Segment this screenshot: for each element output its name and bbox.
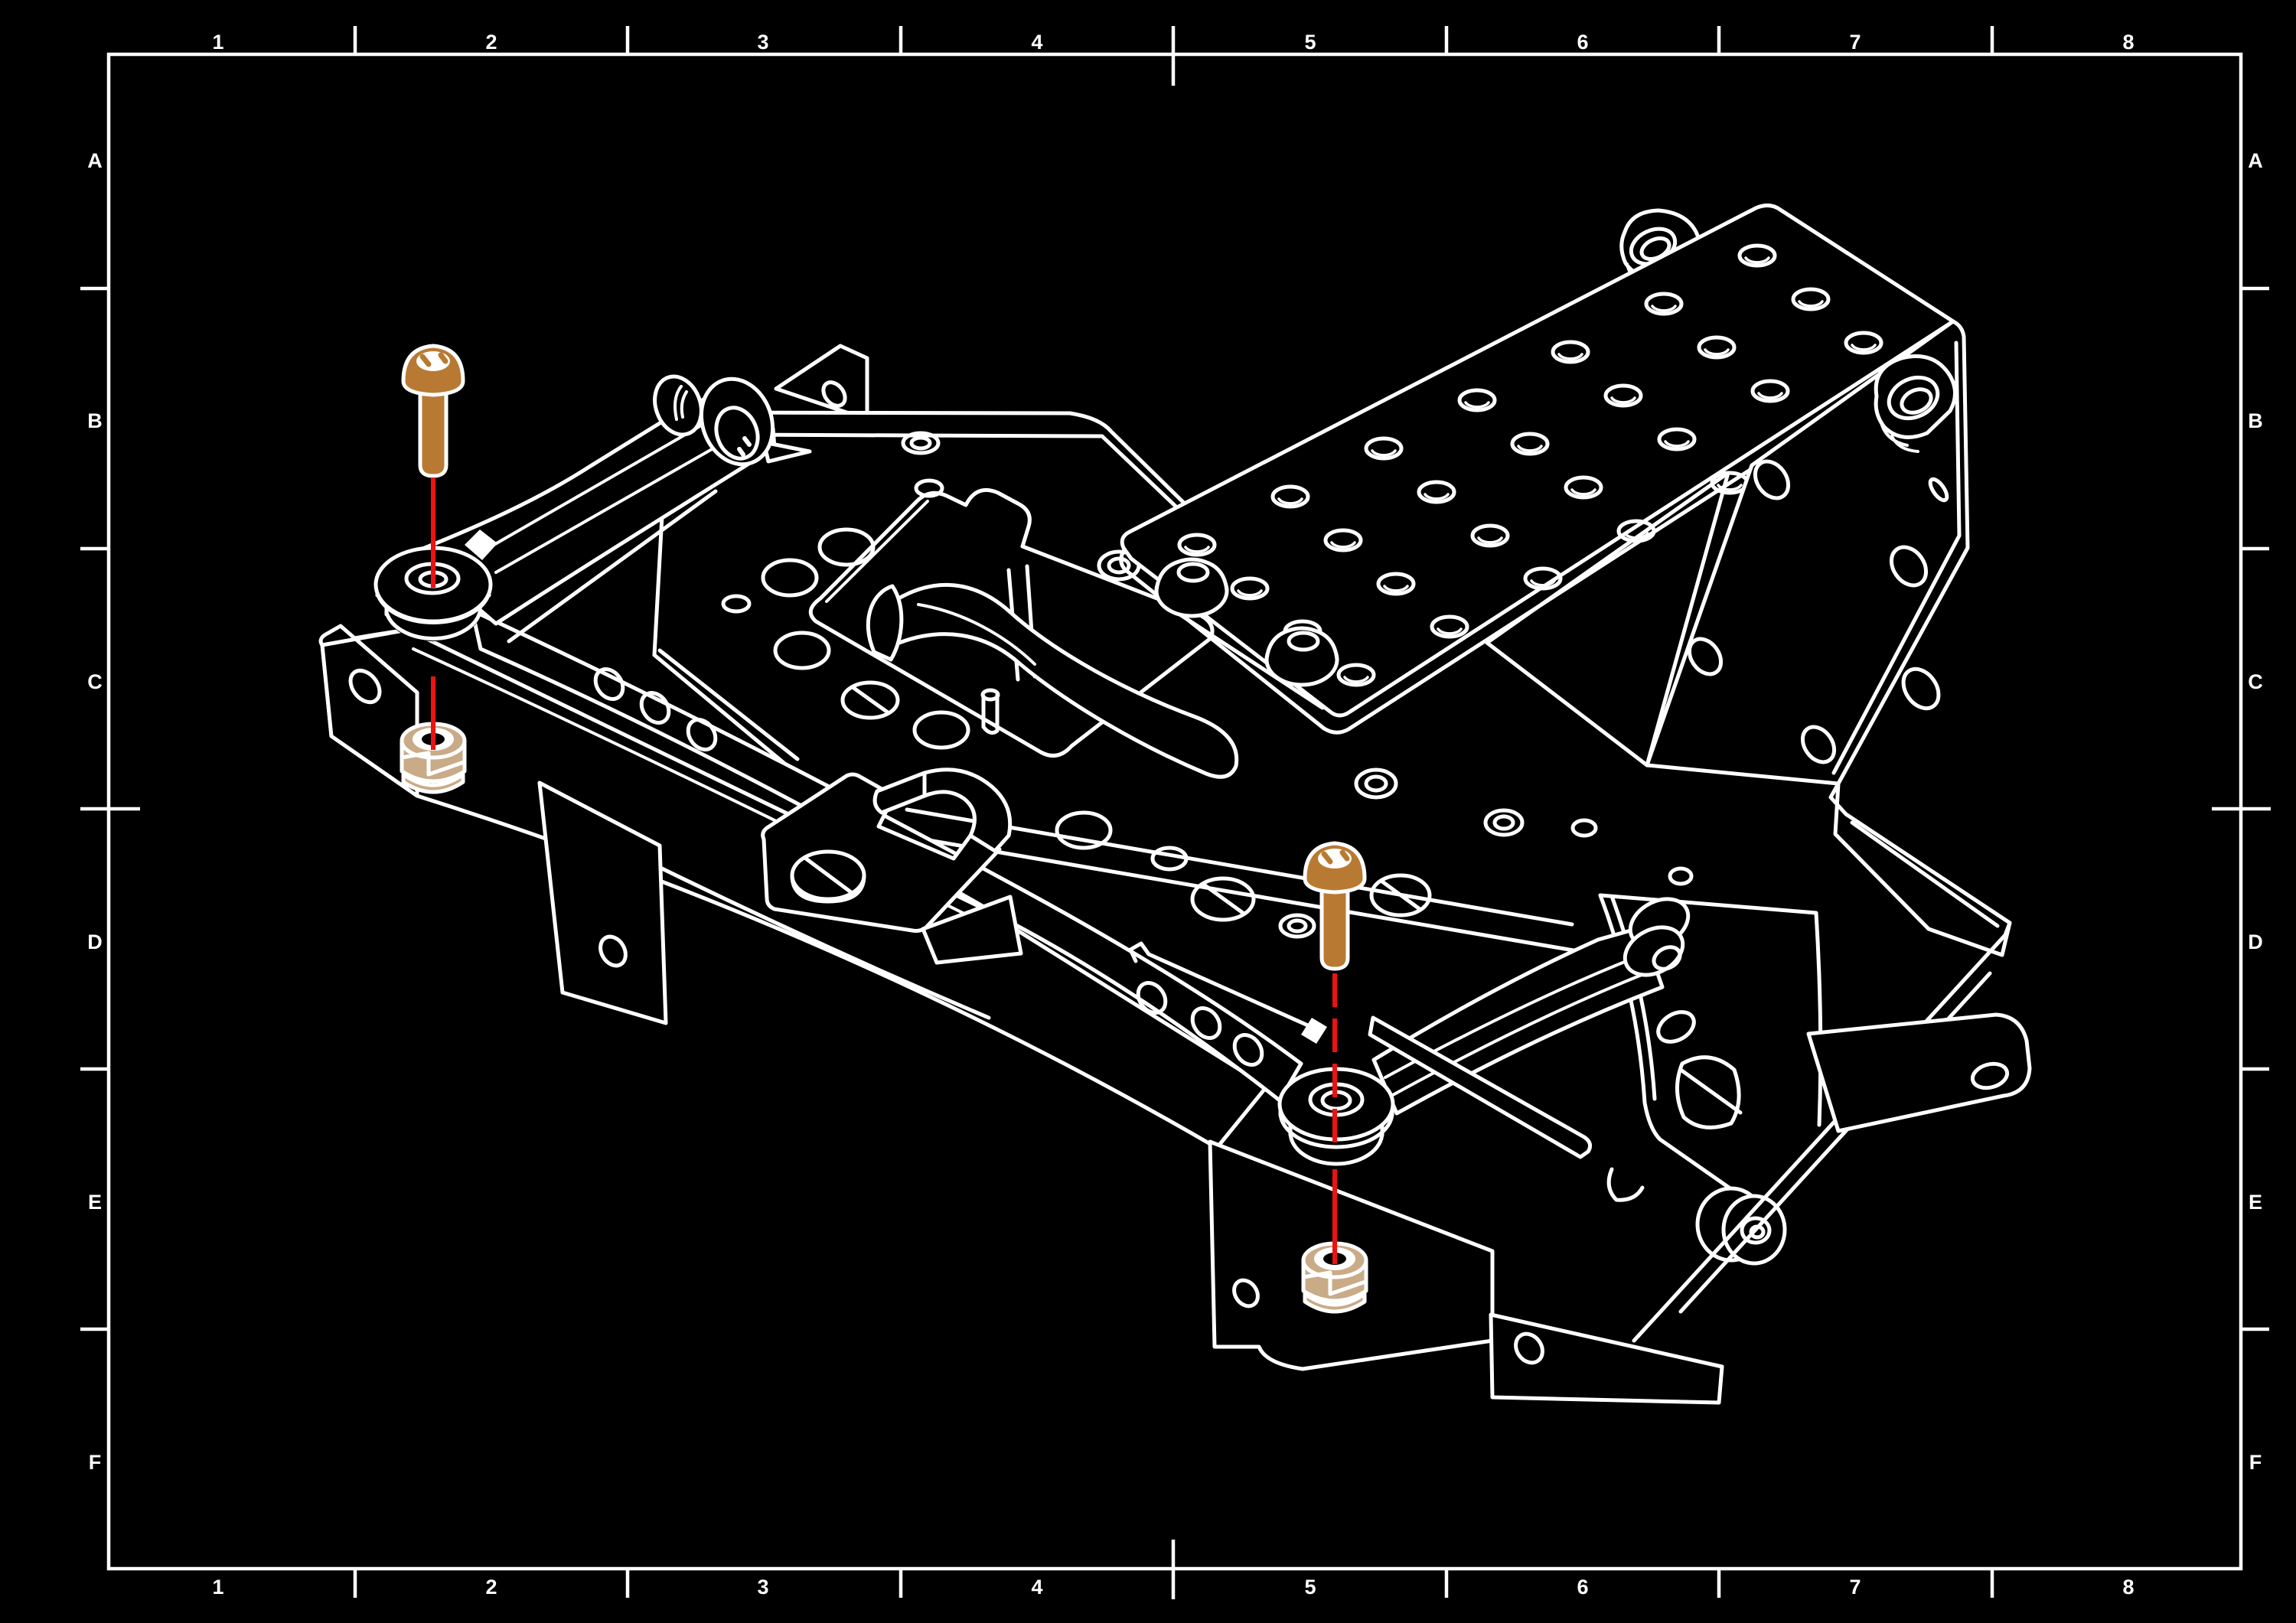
svg-text:E: E [2249,1191,2262,1214]
svg-text:E: E [88,1191,102,1214]
svg-text:4: 4 [1031,31,1042,54]
svg-text:D: D [2248,930,2263,953]
svg-text:2: 2 [485,31,497,54]
svg-text:B: B [2248,409,2263,432]
svg-text:2: 2 [485,1576,497,1599]
svg-text:C: C [2248,670,2263,693]
svg-text:7: 7 [1849,31,1861,54]
svg-text:8: 8 [2122,31,2134,54]
svg-text:5: 5 [1304,1576,1316,1599]
svg-text:1: 1 [212,31,223,54]
svg-text:3: 3 [757,1576,768,1599]
svg-text:B: B [87,409,103,432]
svg-text:1: 1 [212,1576,223,1599]
svg-text:4: 4 [1031,1576,1042,1599]
svg-text:A: A [2248,149,2263,172]
svg-text:C: C [87,670,103,693]
svg-text:A: A [87,149,103,172]
svg-text:8: 8 [2122,1576,2134,1599]
svg-text:D: D [87,930,103,953]
svg-text:7: 7 [1849,1576,1861,1599]
svg-text:6: 6 [1577,31,1588,54]
svg-text:3: 3 [757,31,768,54]
svg-text:F: F [2249,1451,2262,1474]
svg-text:6: 6 [1577,1576,1588,1599]
svg-text:F: F [89,1451,102,1474]
svg-text:5: 5 [1304,31,1316,54]
